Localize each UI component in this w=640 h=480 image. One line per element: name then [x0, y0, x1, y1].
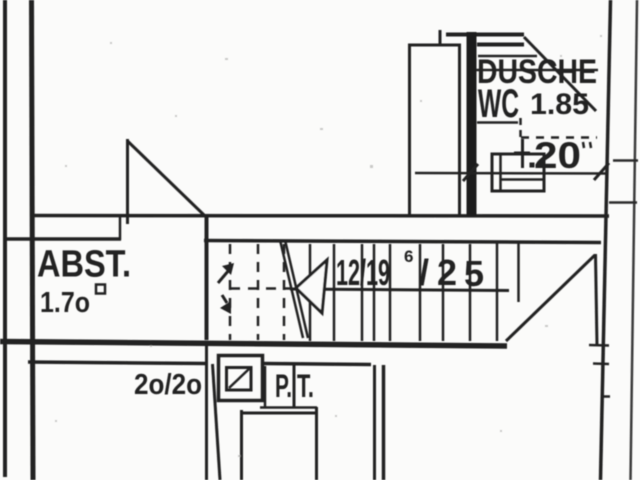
svg-text:6: 6	[404, 247, 413, 266]
svg-text:T.: T.	[297, 368, 314, 404]
svg-text:ABST.: ABST.	[37, 244, 131, 286]
svg-text:12/19: 12/19	[336, 252, 390, 293]
svg-text:WC: WC	[478, 82, 519, 126]
svg-text:2o/2o: 2o/2o	[134, 369, 202, 401]
svg-text:1.7o: 1.7o	[40, 287, 90, 319]
svg-text:P.: P.	[275, 368, 292, 404]
svg-text:5: 5	[464, 253, 484, 294]
svg-text:2: 2	[437, 252, 457, 293]
svg-text:1.85: 1.85	[530, 88, 589, 121]
svg-text:/: /	[419, 252, 429, 293]
